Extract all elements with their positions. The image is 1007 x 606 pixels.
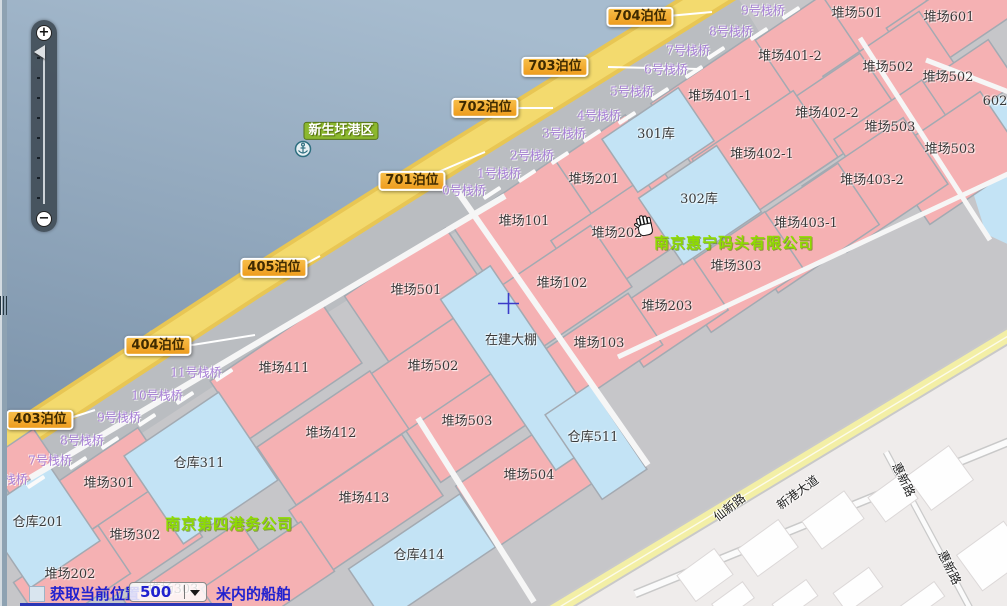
sidebar-collapse-strip (0, 0, 7, 606)
ship-query-bar: 获取当前位置 500 米内的船舶 (0, 580, 1007, 606)
sidebar-collapse-handle[interactable] (0, 296, 7, 315)
zoom-slider-track[interactable] (43, 48, 45, 204)
map-canvas[interactable]: 新生圩港区704泊位703泊位702泊位701泊位405泊位404泊位403泊位… (0, 0, 1007, 606)
dropdown-caret-icon (190, 590, 200, 596)
dropdown-divider (184, 585, 185, 599)
anchor-icon (294, 140, 312, 158)
map-graphics (0, 0, 1007, 606)
zoom-slider-thumb[interactable] (34, 45, 45, 59)
zoom-out-button[interactable]: − (36, 211, 52, 227)
zoom-slider[interactable]: + − (31, 20, 57, 232)
ships-within-label: 米内的船舶 (216, 583, 291, 604)
distance-dropdown-value: 500 (140, 583, 171, 601)
get-location-label: 获取当前位置 (50, 583, 140, 604)
zoom-in-button[interactable]: + (36, 25, 52, 41)
get-location-checkbox[interactable] (29, 586, 45, 602)
distance-dropdown[interactable]: 500 (129, 582, 207, 602)
